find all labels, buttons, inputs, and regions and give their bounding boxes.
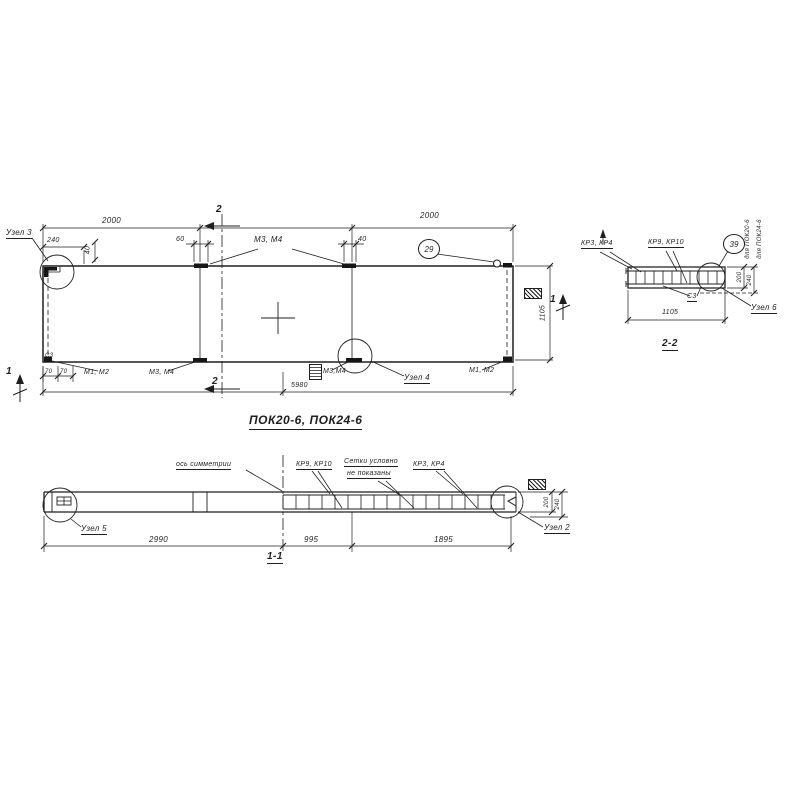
plan-label-uzel4: Узел 4	[404, 373, 430, 384]
plan-label-uzel3: Узел 3	[6, 228, 32, 239]
section22-note-pok24: для ПОК24-6	[757, 219, 763, 258]
marking-stamp-icon	[528, 479, 546, 490]
section11-label-axis: ось симметрии	[176, 461, 231, 470]
section22-label-c3: С3	[687, 293, 697, 302]
section11-label-uzel5: Узел 5	[81, 524, 107, 535]
plan-section-mark-1-left: 1	[6, 366, 12, 377]
plan-dim-240: 240	[47, 237, 60, 244]
drawing-linework	[0, 0, 800, 800]
plan-title: ПОК20-6, ПОК24-6	[249, 413, 362, 430]
plan-label-m3m4-top: М3, М4	[254, 235, 282, 244]
plan-edges-inner	[43, 266, 507, 362]
plan-dim-2000-right: 2000	[420, 211, 439, 220]
section11-label-uzel2: Узел 2	[544, 523, 570, 534]
section22-callout-39: 39	[723, 234, 745, 254]
plan-dim-40: 40	[358, 236, 366, 243]
plan-section-mark-2-top: 2	[216, 204, 222, 215]
plan-section-mark-2-bottom: 2	[212, 376, 218, 387]
section11-dim-240: 240	[555, 499, 561, 510]
weld-mark-icon	[309, 364, 322, 380]
plan-label-m1m2-right: М1, М2	[469, 367, 494, 374]
section22-dim-200: 200	[737, 272, 743, 283]
section22-body	[626, 263, 725, 291]
plan-center-cross-icon	[261, 302, 295, 334]
plan-detail-circles	[40, 255, 372, 373]
plan-label-c3: С3	[45, 353, 53, 359]
plan-label-m3m4-mid: М3,М4	[323, 368, 346, 375]
section22-label-kr34: КР3, КР4	[581, 240, 613, 249]
plan-label-m3m4-left: М3, М4	[149, 369, 174, 376]
section22-label-uzel6: Узел 6	[751, 303, 777, 314]
section11-label-kr910: КР9, КР10	[296, 461, 332, 470]
plan-dim-1105: 1105	[540, 305, 547, 321]
section11-dim-995: 995	[304, 535, 318, 544]
section11-note-line1: Сетки условно	[344, 458, 398, 467]
section11-dim-200: 200	[544, 497, 550, 508]
plan-dim-40-step: 40	[85, 246, 92, 254]
plan-dim-5980: 5980	[291, 382, 308, 389]
section11-note-line2: не показаны	[347, 470, 391, 479]
section22-title: 2-2	[662, 338, 678, 351]
plan-dim-60: 60	[176, 236, 184, 243]
plan-leader-lines	[32, 238, 504, 376]
drawing-sheet: Узел 3 2000 2 М3, М4 2000 29 240 40 60 4…	[0, 0, 800, 800]
plan-callout-29: 29	[418, 239, 440, 259]
plan-section-mark-1-right: 1	[550, 294, 556, 305]
section11-dim-1895: 1895	[434, 535, 453, 544]
lifting-loop-icon	[494, 260, 501, 267]
section22-dim-1105: 1105	[662, 309, 678, 316]
section22-note-pok20: для ПОК20-6	[745, 219, 751, 258]
section22-dim-240: 240	[747, 275, 753, 286]
plan-dim-70-b: 70	[60, 369, 67, 375]
section11-title: 1-1	[267, 551, 283, 564]
plan-label-m1m2-left: М1, М2	[84, 369, 109, 376]
section22-label-kr910: КР9, КР10	[648, 239, 684, 248]
section11-label-kr34: КР3, КР4	[413, 461, 445, 470]
plan-dim-2000-left: 2000	[102, 216, 121, 225]
section11-dim-2990: 2990	[149, 535, 168, 544]
section11-leaders	[71, 470, 543, 527]
plan-dim-70-a: 70	[45, 369, 52, 375]
marking-stamp-icon	[524, 288, 542, 299]
